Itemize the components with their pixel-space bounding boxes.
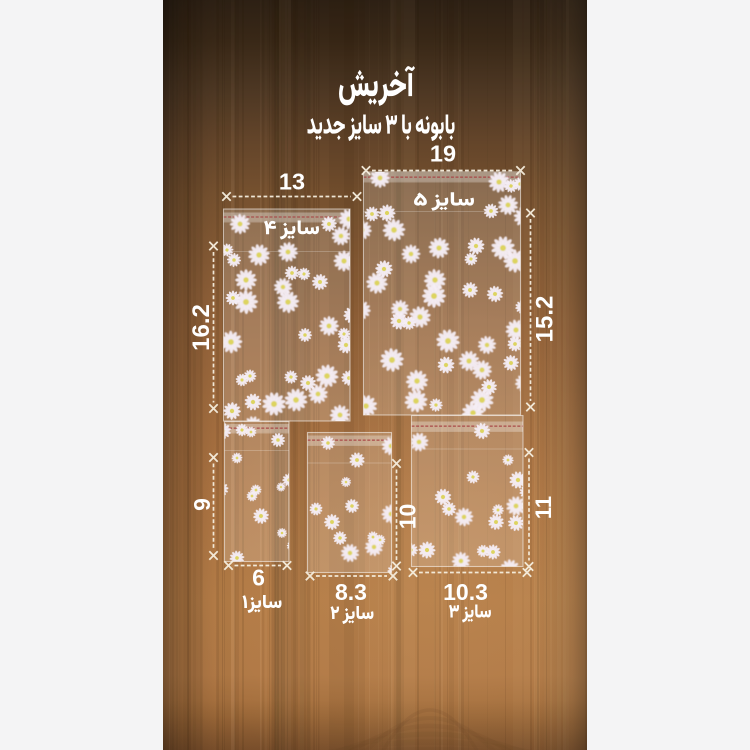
svg-text:10.3: 10.3	[443, 579, 488, 605]
svg-text:6: 6	[252, 565, 265, 591]
svg-text:10: 10	[395, 504, 421, 530]
svg-text:8.3: 8.3	[335, 579, 367, 605]
svg-text:11: 11	[531, 496, 556, 519]
svg-text:9: 9	[189, 498, 215, 511]
svg-text:19: 19	[430, 141, 456, 167]
svg-text:16.2: 16.2	[188, 304, 215, 351]
svg-text:13: 13	[279, 169, 305, 195]
svg-text:15.2: 15.2	[532, 296, 559, 343]
